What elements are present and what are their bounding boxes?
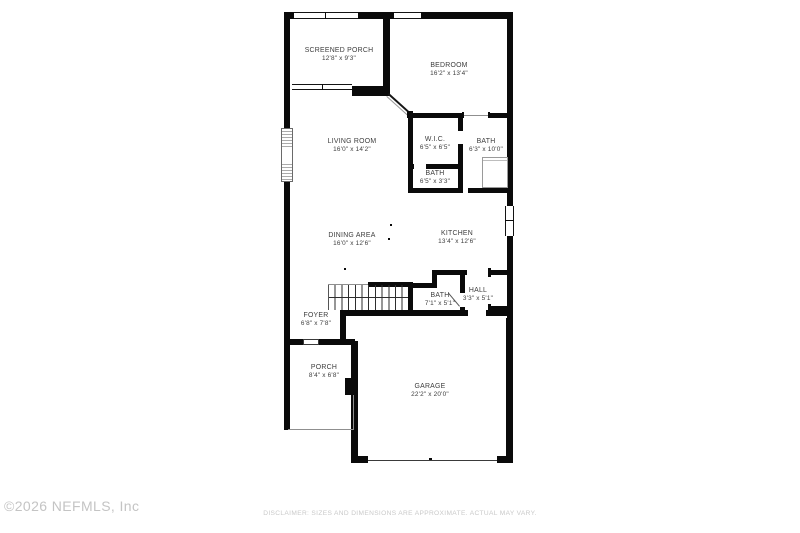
living-room-window	[281, 128, 293, 182]
room-label-garage: GARAGE 22'2" x 20'0"	[411, 382, 449, 400]
bedroom-entry-door-swing-line	[386, 96, 408, 116]
window-sash-top	[282, 129, 292, 148]
garage-door-line	[368, 460, 497, 461]
door-jamb-tick	[465, 270, 467, 275]
window-mullion-tick	[325, 12, 326, 19]
window-sash-bottom	[282, 162, 292, 181]
room-label-dining-area: DINING AREA 16'0" x 12'6"	[328, 231, 375, 249]
room-dims: 7'1" x 5'1"	[425, 300, 455, 309]
dimension-dot	[344, 268, 346, 270]
room-label-bath-primary: BATH 6'3" x 10'0"	[469, 137, 503, 155]
room-dims: 6'3" x 10'0"	[469, 146, 503, 155]
wall-top-corner	[284, 12, 294, 19]
room-name: BATH	[425, 291, 455, 300]
room-name: SCREENED PORCH	[305, 46, 374, 55]
door-jamb-tick	[466, 310, 468, 316]
garage-door-center-tick	[429, 458, 432, 460]
wall-bedroom-bottom-left	[408, 113, 462, 118]
wall-garage-top-left	[341, 310, 468, 316]
room-label-bedroom: BEDROOM 16'2" x 13'4"	[430, 61, 468, 79]
room-name: BEDROOM	[430, 61, 468, 70]
room-dims: 16'0" x 12'6"	[328, 240, 375, 249]
disclaimer-text: DISCLAIMER: SIZES AND DIMENSIONS ARE APP…	[0, 510, 800, 517]
room-label-porch: PORCH 8'4" x 6'8"	[309, 363, 339, 381]
room-label-hall: HALL 3'3" x 5'1"	[463, 286, 493, 304]
window-mullion-tick	[505, 220, 514, 221]
wall-porch-elbow	[352, 86, 390, 96]
room-name: HALL	[463, 286, 493, 295]
wall-garage-top-right	[488, 310, 513, 316]
wall-hall-top	[488, 270, 513, 275]
wall-foyer-bottom-right	[318, 339, 355, 345]
door-jamb-tick	[412, 164, 414, 169]
dimension-dot	[388, 238, 390, 240]
room-dims: 6'5" x 3'3"	[420, 178, 450, 187]
room-dims: 12'8" x 9'3"	[305, 55, 374, 64]
screen-mullion-tick	[322, 84, 323, 90]
room-name: BATH	[420, 169, 450, 178]
porch-edge-right	[353, 395, 354, 430]
wall-bath-bottom-left	[408, 188, 460, 193]
wall-garage-bottom-right-block	[497, 456, 513, 463]
room-name: FOYER	[301, 311, 331, 320]
room-dims: 6'8" x 7'8"	[301, 320, 331, 329]
room-label-foyer: FOYER 6'8" x 7'8"	[301, 311, 331, 329]
wall-garage-right	[506, 318, 513, 463]
room-dims: 16'2" x 13'4"	[430, 70, 468, 79]
wall-wic-right-upper	[458, 117, 463, 131]
room-dims: 22'2" x 20'0"	[411, 391, 449, 400]
room-name: KITCHEN	[438, 229, 476, 238]
room-label-bath-hall: BATH 7'1" x 5'1"	[425, 291, 455, 309]
room-name: DINING AREA	[328, 231, 375, 240]
room-dims: 6'5" x 6'5"	[420, 144, 450, 153]
porch-column-block	[345, 378, 357, 395]
room-dims: 13'4" x 12'6"	[438, 238, 476, 247]
room-label-bath-wic: BATH 6'5" x 3'3"	[420, 169, 450, 187]
room-dims: 8'4" x 6'8"	[309, 372, 339, 381]
room-label-wic: W.I.C. 6'5" x 6'5"	[420, 135, 450, 153]
wall-wic-left	[408, 113, 413, 193]
room-dims: 16'0" x 14'2"	[328, 146, 377, 155]
room-name: LIVING ROOM	[328, 137, 377, 146]
door-jamb-tick	[486, 310, 488, 316]
room-label-kitchen: KITCHEN 13'4" x 12'6"	[438, 229, 476, 247]
wall-hallbath-left	[408, 288, 413, 312]
front-door	[303, 339, 319, 345]
staircase-run-divider	[329, 297, 408, 298]
room-label-screened-porch: SCREENED PORCH 12'8" x 9'3"	[305, 46, 374, 64]
screened-porch-top-window	[294, 12, 358, 19]
wall-porch-bedroom-divider	[383, 12, 390, 96]
door-jamb-tick	[488, 268, 491, 277]
wall-bedroom-bottom-right	[490, 113, 513, 118]
shower-glass-line	[483, 160, 507, 161]
porch-edge-bottom	[288, 429, 354, 430]
kitchen-window	[505, 206, 514, 236]
wall-bath-bottom-right	[468, 188, 513, 193]
staircase	[328, 285, 408, 310]
room-name: GARAGE	[411, 382, 449, 391]
bedroom-bath-door-line	[462, 115, 490, 116]
wall-left	[284, 12, 290, 430]
room-name: PORCH	[309, 363, 339, 372]
room-label-living-room: LIVING ROOM 16'0" x 14'2"	[328, 137, 377, 155]
wall-top-right	[421, 12, 513, 19]
dimension-dot	[390, 224, 392, 226]
floorplan-image: SCREENED PORCH 12'8" x 9'3" BEDROOM 16'2…	[0, 0, 800, 533]
room-name: BATH	[469, 137, 503, 146]
room-dims: 3'3" x 5'1"	[463, 295, 493, 304]
wall-garage-bottom-left-block	[351, 456, 368, 463]
door-jamb-tick	[488, 112, 490, 118]
shower-outline	[482, 157, 508, 188]
room-name: W.I.C.	[420, 135, 450, 144]
bedroom-top-window	[394, 12, 421, 19]
wall-hallbath-shoulder	[410, 283, 437, 288]
wall-foyer-bottom-left	[284, 339, 304, 345]
